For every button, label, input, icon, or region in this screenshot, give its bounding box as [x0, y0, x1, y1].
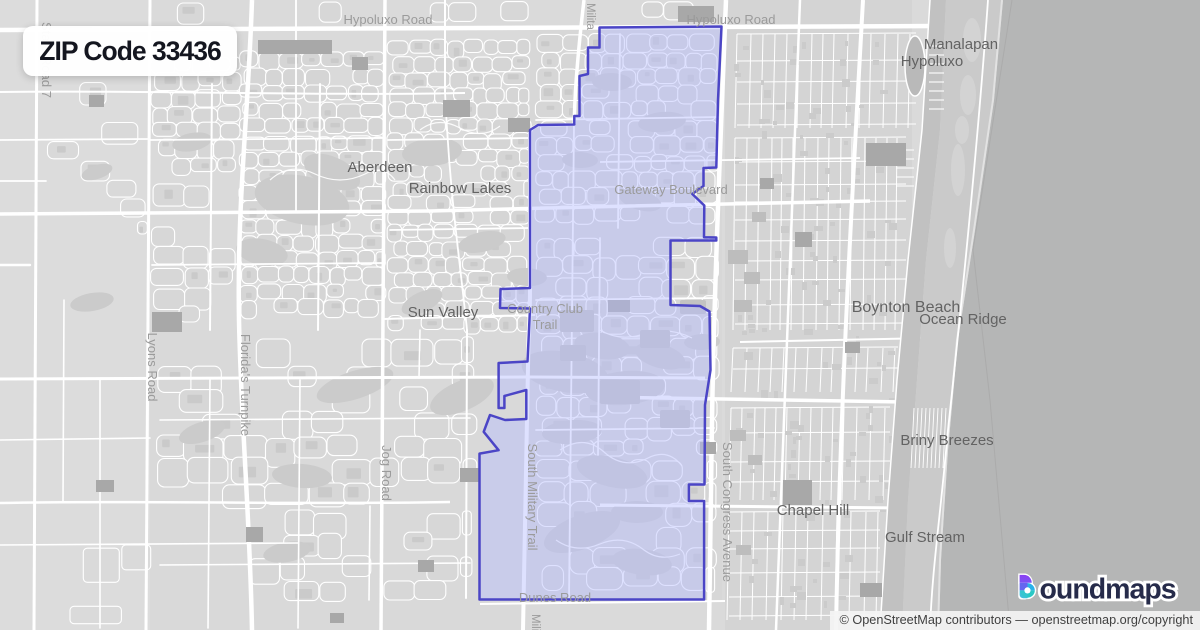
svg-text:Rainbow Lakes: Rainbow Lakes: [409, 180, 512, 197]
svg-text:Hypoluxo Road: Hypoluxo Road: [344, 12, 433, 27]
svg-text:Jog Road: Jog Road: [379, 445, 394, 501]
svg-text:Lyons Road: Lyons Road: [145, 333, 160, 402]
svg-text:Hypoluxo Road: Hypoluxo Road: [687, 12, 776, 27]
svg-text:Gateway Boulevard: Gateway Boulevard: [614, 182, 727, 197]
svg-text:Trail: Trail: [533, 317, 558, 332]
svg-text:Dunes Road: Dunes Road: [519, 590, 591, 605]
svg-text:Aberdeen: Aberdeen: [347, 159, 412, 176]
svg-text:South Military Trail: South Military Trail: [525, 444, 540, 551]
svg-text:Manalapan: Manalapan: [924, 36, 998, 53]
svg-text:Milita: Milita: [584, 3, 596, 30]
svg-text:Sun Valley: Sun Valley: [408, 304, 479, 321]
svg-text:Briny Breezes: Briny Breezes: [900, 432, 993, 449]
svg-text:Ocean Ridge: Ocean Ridge: [919, 311, 1007, 328]
svg-text:South Congress Avenue: South Congress Avenue: [720, 442, 735, 582]
svg-text:Milit: Milit: [529, 614, 541, 630]
svg-text:Hypoluxo: Hypoluxo: [901, 53, 964, 70]
svg-text:Chapel Hill: Chapel Hill: [777, 502, 850, 519]
svg-text:Country Club: Country Club: [507, 301, 583, 316]
svg-text:Gulf Stream: Gulf Stream: [885, 529, 965, 546]
svg-text:Florida's Turnpike: Florida's Turnpike: [238, 334, 253, 436]
svg-text:oundmaps: oundmaps: [1040, 574, 1176, 606]
